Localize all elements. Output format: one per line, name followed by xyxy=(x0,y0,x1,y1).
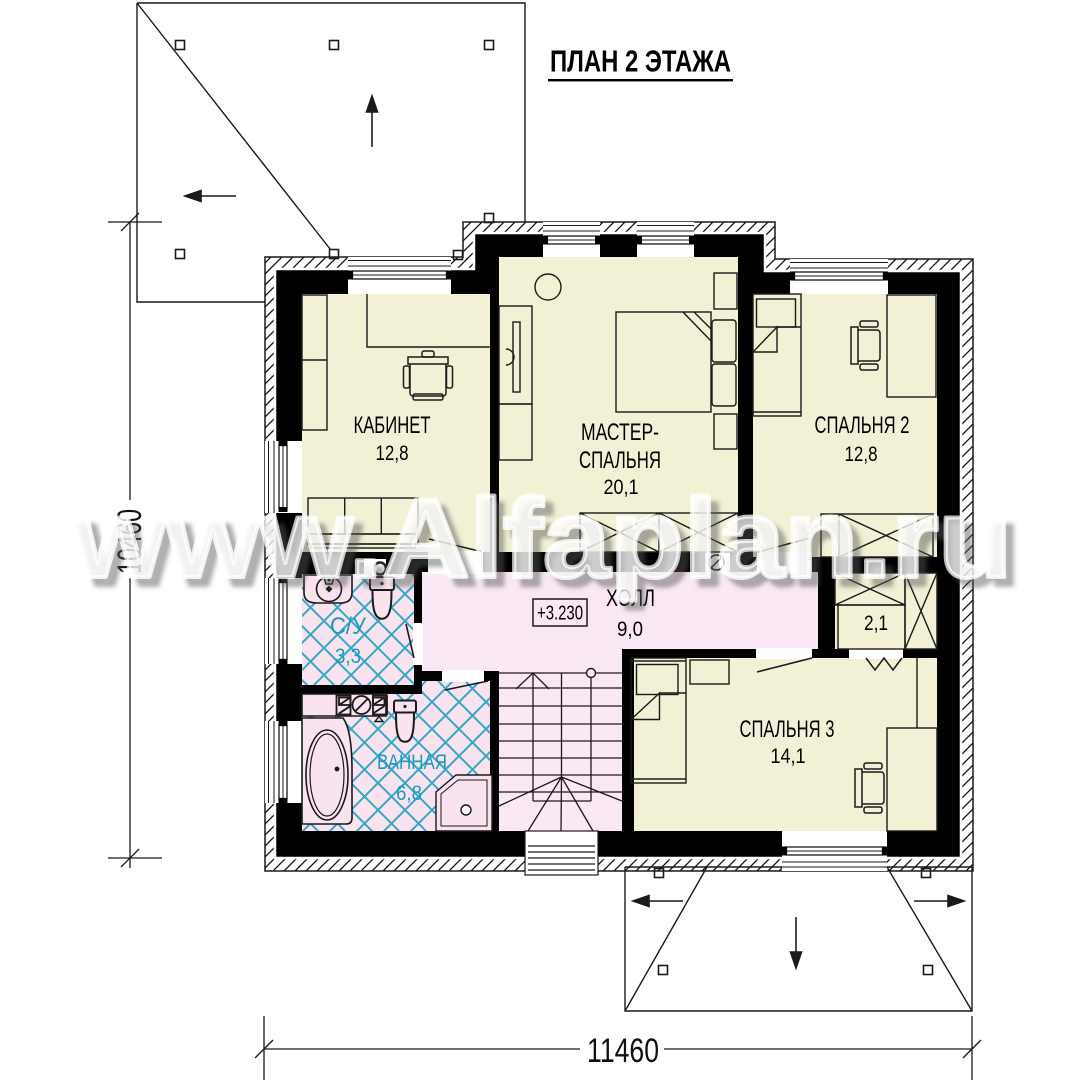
svg-text:6,8: 6,8 xyxy=(396,782,422,805)
svg-text:www.Alfaplan.ru: www.Alfaplan.ru xyxy=(71,476,1012,601)
svg-text:С/У: С/У xyxy=(330,613,367,640)
svg-text:11460: 11460 xyxy=(587,1032,659,1070)
svg-text:ПЛАН 2 ЭТАЖА: ПЛАН 2 ЭТАЖА xyxy=(550,44,731,79)
svg-text:СПАЛЬНЯ: СПАЛЬНЯ xyxy=(579,447,661,474)
svg-text:3,3: 3,3 xyxy=(335,645,361,668)
svg-text:СПАЛЬНЯ 3: СПАЛЬНЯ 3 xyxy=(740,716,835,743)
svg-text:ВАННАЯ: ВАННАЯ xyxy=(377,751,447,774)
svg-text:9,0: 9,0 xyxy=(617,618,643,641)
svg-text:12,8: 12,8 xyxy=(845,443,878,466)
svg-text:14,1: 14,1 xyxy=(771,745,806,768)
svg-text:СПАЛЬНЯ 2: СПАЛЬНЯ 2 xyxy=(815,412,910,439)
svg-text:+3.230: +3.230 xyxy=(537,603,583,625)
svg-text:12,8: 12,8 xyxy=(376,442,409,465)
svg-text:МАСТЕР-: МАСТЕР- xyxy=(581,419,659,446)
svg-text:КАБИНЕТ: КАБИНЕТ xyxy=(354,412,431,439)
svg-text:2,1: 2,1 xyxy=(864,612,888,635)
